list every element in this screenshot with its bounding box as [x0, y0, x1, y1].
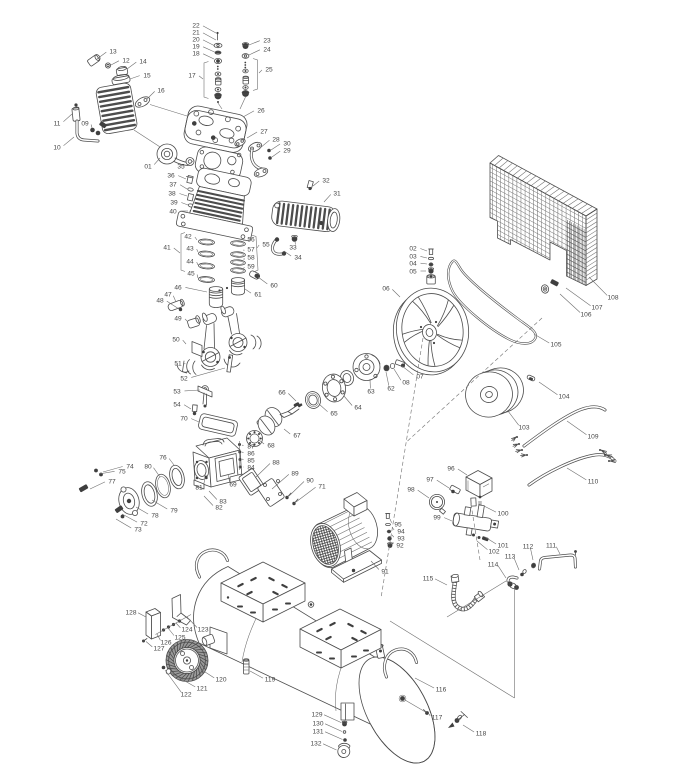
svg-text:23: 23: [263, 38, 271, 45]
svg-text:03: 03: [409, 254, 417, 261]
svg-text:57: 57: [247, 247, 255, 254]
svg-text:71: 71: [318, 484, 326, 491]
svg-text:96: 96: [447, 466, 455, 473]
svg-text:76: 76: [159, 455, 167, 462]
svg-text:81: 81: [195, 485, 203, 492]
svg-text:20: 20: [192, 37, 200, 44]
svg-text:121: 121: [196, 686, 207, 693]
svg-text:79: 79: [170, 508, 178, 515]
svg-text:132: 132: [310, 741, 321, 748]
svg-text:36: 36: [167, 173, 175, 180]
svg-text:39: 39: [170, 200, 178, 207]
svg-text:125: 125: [174, 635, 185, 642]
svg-text:54: 54: [173, 402, 181, 409]
svg-text:16: 16: [157, 88, 165, 95]
svg-text:33: 33: [289, 245, 297, 252]
svg-text:48: 48: [156, 298, 164, 305]
svg-text:80: 80: [144, 464, 152, 471]
svg-text:70: 70: [180, 416, 188, 423]
svg-text:37: 37: [169, 182, 177, 189]
svg-text:78: 78: [151, 513, 159, 520]
svg-text:46: 46: [174, 285, 182, 292]
svg-text:82: 82: [215, 505, 223, 512]
svg-text:14: 14: [139, 59, 147, 66]
svg-text:51: 51: [174, 361, 182, 368]
svg-text:100: 100: [497, 511, 508, 518]
svg-text:77: 77: [108, 479, 116, 486]
svg-text:60: 60: [270, 283, 278, 290]
svg-text:53: 53: [173, 389, 181, 396]
svg-text:122: 122: [180, 692, 191, 699]
svg-text:124: 124: [181, 627, 192, 634]
svg-text:49: 49: [174, 316, 182, 323]
svg-text:05: 05: [409, 269, 417, 276]
svg-text:43: 43: [186, 246, 194, 253]
svg-text:21: 21: [192, 30, 200, 37]
svg-text:66: 66: [278, 390, 286, 397]
svg-text:94: 94: [397, 529, 405, 536]
svg-text:31: 31: [333, 191, 341, 198]
svg-text:50: 50: [172, 337, 180, 344]
svg-text:12: 12: [122, 58, 130, 65]
svg-text:84: 84: [247, 465, 255, 472]
svg-text:105: 105: [550, 342, 561, 349]
svg-text:58: 58: [247, 255, 255, 262]
svg-text:47: 47: [164, 292, 172, 299]
svg-text:38: 38: [168, 191, 176, 198]
svg-text:64: 64: [354, 405, 362, 412]
svg-text:127: 127: [153, 646, 164, 653]
svg-text:90: 90: [306, 478, 314, 485]
svg-text:107: 107: [591, 305, 602, 312]
svg-text:103: 103: [518, 425, 529, 432]
svg-text:22: 22: [192, 23, 200, 30]
svg-text:11: 11: [54, 121, 61, 128]
svg-text:26: 26: [257, 108, 265, 115]
svg-text:113: 113: [505, 554, 516, 561]
svg-text:129: 129: [311, 712, 322, 719]
svg-text:63: 63: [367, 389, 375, 396]
svg-text:40: 40: [169, 209, 177, 216]
svg-text:44: 44: [186, 259, 194, 266]
svg-text:69: 69: [229, 482, 237, 489]
svg-text:115: 115: [423, 576, 434, 583]
svg-text:28: 28: [272, 137, 280, 144]
svg-text:130: 130: [312, 721, 323, 728]
svg-text:45: 45: [187, 271, 195, 278]
svg-text:27: 27: [260, 129, 268, 136]
svg-text:17: 17: [188, 73, 196, 80]
svg-text:87: 87: [247, 444, 255, 451]
svg-text:67: 67: [293, 433, 301, 440]
svg-text:61: 61: [254, 292, 262, 299]
svg-text:85: 85: [247, 458, 255, 465]
svg-text:104: 104: [558, 394, 569, 401]
svg-text:13: 13: [109, 49, 117, 56]
svg-text:108: 108: [607, 295, 618, 302]
svg-text:95: 95: [394, 522, 402, 529]
svg-text:29: 29: [283, 148, 291, 155]
svg-text:32: 32: [322, 178, 330, 185]
svg-text:97: 97: [426, 477, 434, 484]
svg-text:35: 35: [177, 164, 185, 171]
svg-text:18: 18: [192, 51, 200, 58]
svg-text:25: 25: [265, 67, 273, 74]
svg-text:73: 73: [134, 527, 142, 534]
svg-text:62: 62: [387, 386, 395, 393]
svg-text:65: 65: [330, 411, 338, 418]
svg-text:75: 75: [118, 469, 126, 476]
svg-text:08: 08: [402, 380, 410, 387]
svg-text:102: 102: [488, 549, 499, 556]
svg-text:119: 119: [265, 677, 276, 684]
svg-text:89: 89: [291, 471, 299, 478]
svg-text:116: 116: [436, 687, 447, 694]
svg-text:86: 86: [247, 451, 255, 458]
svg-text:74: 74: [126, 464, 134, 471]
svg-text:114: 114: [488, 562, 499, 569]
svg-text:07: 07: [416, 374, 424, 381]
svg-text:106: 106: [580, 312, 591, 319]
svg-text:02: 02: [409, 246, 417, 253]
svg-text:128: 128: [125, 610, 136, 617]
svg-text:68: 68: [267, 443, 275, 450]
svg-text:52: 52: [180, 376, 188, 383]
svg-text:59: 59: [247, 264, 255, 271]
svg-text:30: 30: [283, 141, 291, 148]
svg-text:91: 91: [381, 569, 389, 576]
svg-text:118: 118: [476, 731, 487, 738]
svg-text:10: 10: [53, 145, 61, 152]
svg-text:112: 112: [523, 544, 534, 551]
svg-text:120: 120: [215, 677, 226, 684]
svg-text:01: 01: [144, 164, 152, 171]
svg-text:41: 41: [163, 245, 171, 252]
svg-text:09: 09: [81, 121, 89, 128]
svg-text:06: 06: [382, 286, 390, 293]
svg-text:109: 109: [587, 434, 598, 441]
svg-text:42: 42: [184, 234, 192, 241]
svg-text:123: 123: [197, 627, 208, 634]
svg-text:15: 15: [143, 73, 151, 80]
svg-text:99: 99: [433, 515, 441, 522]
svg-text:110: 110: [588, 479, 599, 486]
svg-text:111: 111: [546, 543, 556, 550]
svg-text:98: 98: [407, 487, 415, 494]
svg-text:19: 19: [192, 44, 200, 51]
svg-text:92: 92: [396, 543, 404, 550]
svg-text:55: 55: [262, 242, 270, 249]
svg-text:117: 117: [432, 715, 443, 722]
svg-text:34: 34: [294, 255, 302, 262]
svg-text:131: 131: [312, 729, 323, 736]
svg-text:88: 88: [272, 460, 280, 467]
svg-text:24: 24: [263, 47, 271, 54]
svg-text:04: 04: [409, 261, 417, 268]
svg-text:56: 56: [247, 237, 255, 244]
svg-text:93: 93: [397, 536, 405, 543]
